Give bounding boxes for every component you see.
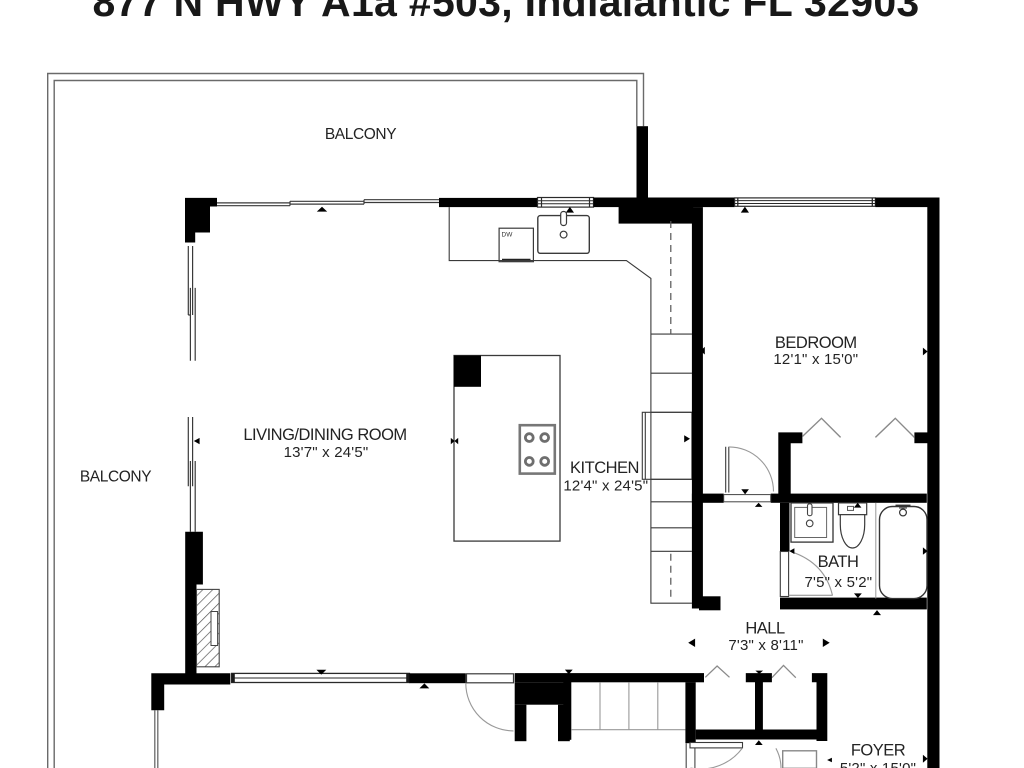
svg-text:KITCHEN: KITCHEN bbox=[570, 459, 639, 477]
svg-text:12'4" x 24'5": 12'4" x 24'5" bbox=[563, 478, 648, 495]
svg-text:BALCONY: BALCONY bbox=[80, 469, 151, 486]
svg-text:FOYER: FOYER bbox=[851, 742, 906, 760]
svg-text:12'1" x 15'0": 12'1" x 15'0" bbox=[773, 351, 858, 368]
svg-text:BEDROOM: BEDROOM bbox=[775, 334, 857, 352]
svg-text:7'5" x 5'2": 7'5" x 5'2" bbox=[805, 574, 873, 591]
svg-text:13'7" x 24'5": 13'7" x 24'5" bbox=[284, 444, 369, 461]
svg-text:BATH: BATH bbox=[818, 553, 859, 571]
svg-text:LIVING/DINING ROOM: LIVING/DINING ROOM bbox=[243, 426, 406, 444]
svg-text:HALL: HALL bbox=[745, 620, 785, 638]
svg-text:DW: DW bbox=[502, 232, 514, 239]
svg-text:5'2" x 15'0": 5'2" x 15'0" bbox=[840, 760, 916, 768]
svg-text:877 N HWY A1a #503, Indialanti: 877 N HWY A1a #503, Indialantic FL 32903 bbox=[92, 0, 919, 25]
svg-text:BALCONY: BALCONY bbox=[325, 126, 396, 143]
svg-text:7'3" x 8'11": 7'3" x 8'11" bbox=[728, 637, 803, 654]
